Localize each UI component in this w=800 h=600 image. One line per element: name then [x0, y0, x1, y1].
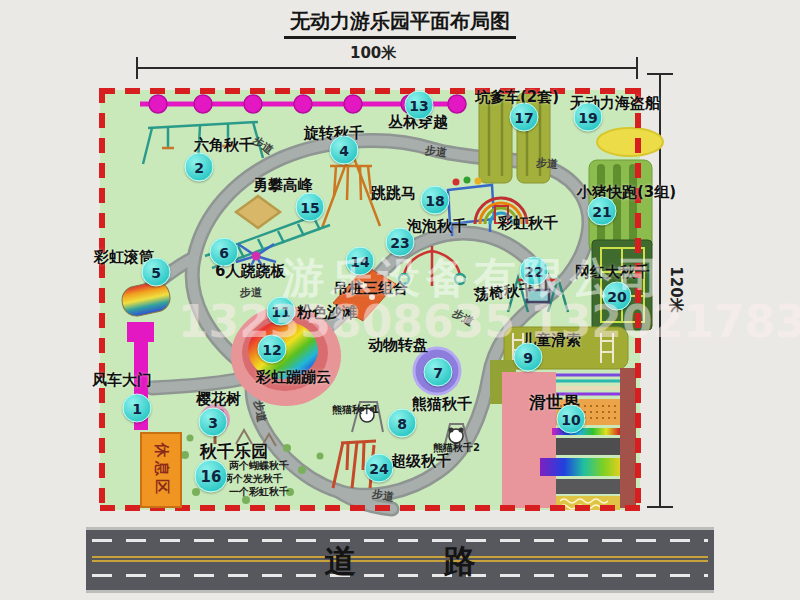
rest-area-label: 休息区 — [152, 443, 171, 497]
rainbow-roller-icon — [119, 279, 172, 318]
badge-16: 16 — [195, 460, 228, 493]
badge-13: 13 — [405, 91, 434, 120]
badge-8: 8 — [388, 409, 417, 438]
park-border-right — [635, 88, 641, 510]
badge-22: 22 — [520, 257, 549, 286]
walkway-label: 步道 — [535, 155, 558, 172]
road-label: 道 路 — [86, 540, 714, 584]
badge-6: 6 — [210, 238, 239, 267]
badge-2: 2 — [185, 153, 214, 182]
badge-5: 5 — [142, 258, 171, 287]
label-panda-swing-1: 熊猫秋千1 — [332, 403, 379, 417]
label-rainbow-cloud: 彩虹蹦蹦云 — [256, 368, 331, 387]
road: 道 路 — [86, 527, 714, 593]
badge-19: 19 — [574, 103, 603, 132]
park-border-left — [99, 88, 105, 510]
badge-3: 3 — [199, 408, 228, 437]
label-animal-turntable: 动物转盘 — [368, 336, 428, 355]
badge-21: 21 — [588, 197, 617, 226]
label-cherry-tree: 樱花树 — [196, 390, 241, 409]
walkway-label: 步道 — [240, 285, 262, 300]
park-plan-image: 无动力游乐园平面布局图 100米 120米 — [0, 0, 800, 600]
label-bubble-swing: 泡泡秋千 — [407, 217, 467, 236]
badge-24: 24 — [365, 454, 394, 483]
swing-park-notes: 两个蝴蝶秋千 两个发光秋千 一个彩虹秋千 — [229, 459, 289, 498]
badge-10: 10 — [557, 405, 586, 434]
label-big-swing: 网红大秋千 — [575, 263, 650, 282]
badge-1: 1 — [123, 394, 152, 423]
pirate-ship-icon — [597, 128, 663, 156]
badge-7: 7 — [424, 358, 453, 387]
label-hanging-post-combo: 吊桩三组合 — [333, 279, 408, 298]
label-jumping-horse: 跳跳马 — [371, 184, 416, 203]
walkway-label: 步道 — [424, 143, 448, 161]
rest-area-box: 休息区 — [140, 432, 182, 508]
label-panda-swing-2: 熊猫秋千2 — [433, 441, 480, 455]
label-pink-beach: 粉色沙滩 — [297, 303, 357, 322]
slide-world-icon — [490, 360, 636, 510]
badge-4: 4 — [330, 136, 359, 165]
label-panda-swing: 熊猫秋千 — [412, 395, 472, 414]
label-rainbow-swing: 彩虹秋千 — [498, 214, 558, 233]
label-peak-climbing: 勇攀高峰 — [253, 176, 313, 195]
badge-14: 14 — [346, 247, 375, 276]
badge-23: 23 — [386, 228, 415, 257]
badge-17: 17 — [510, 103, 539, 132]
badge-18: 18 — [421, 186, 450, 215]
badge-11: 11 — [267, 297, 296, 326]
badge-12: 12 — [258, 335, 287, 364]
badge-20: 20 — [603, 282, 632, 311]
badge-9: 9 — [514, 343, 543, 372]
label-windmill-gate: 风车大门 — [92, 371, 152, 390]
badge-15: 15 — [296, 193, 325, 222]
